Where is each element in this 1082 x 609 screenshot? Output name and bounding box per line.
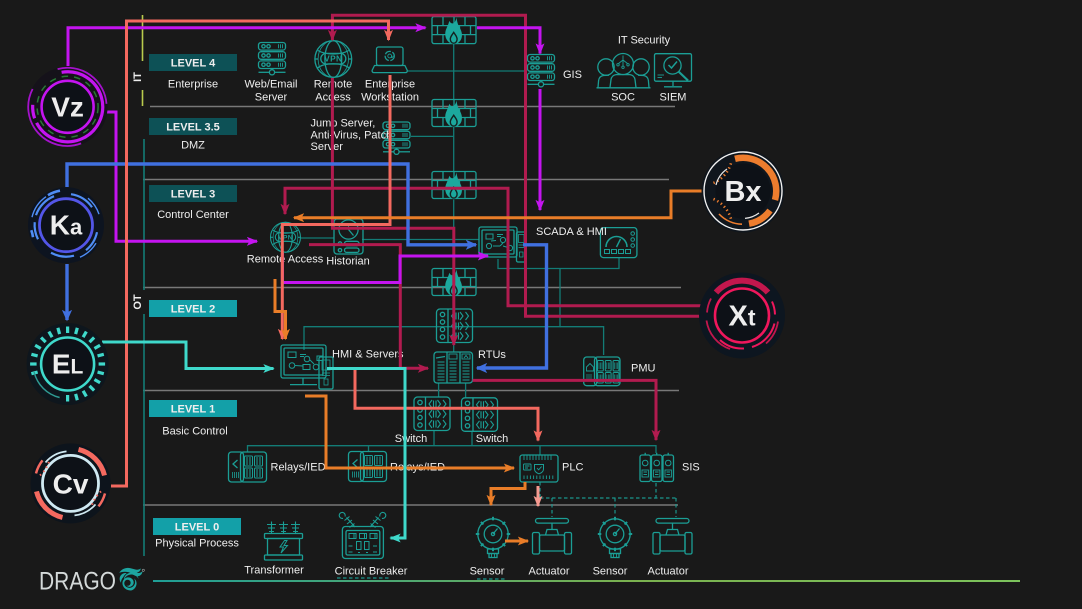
svg-text:Server: Server — [255, 92, 288, 104]
svg-text:LEVEL 3.5: LEVEL 3.5 — [166, 122, 220, 134]
svg-text:Jump Server,: Jump Server, — [311, 118, 376, 130]
svg-text:Transformer: Transformer — [244, 565, 304, 577]
svg-text:SIS: SIS — [682, 462, 700, 474]
svg-text:RTUs: RTUs — [478, 349, 506, 361]
svg-text:DMZ: DMZ — [181, 140, 205, 152]
svg-text:Ka: Ka — [50, 210, 83, 241]
svg-text:Enterprise: Enterprise — [168, 79, 218, 91]
svg-text:Vz: Vz — [51, 91, 84, 122]
svg-text:Switch: Switch — [476, 433, 508, 445]
svg-text:Anti-Virus, Patch: Anti-Virus, Patch — [311, 129, 393, 141]
svg-text:Cv: Cv — [53, 468, 89, 499]
svg-text:PLC: PLC — [562, 462, 583, 474]
svg-text:Historian: Historian — [326, 256, 369, 268]
svg-text:IT Security: IT Security — [618, 35, 671, 47]
svg-text:Control Center: Control Center — [157, 209, 229, 221]
svg-text:Switch: Switch — [395, 433, 427, 445]
svg-text:LEVEL 2: LEVEL 2 — [171, 304, 215, 316]
svg-text:Xt: Xt — [728, 301, 755, 333]
svg-text:Actuator: Actuator — [529, 566, 570, 578]
svg-text:Bx: Bx — [724, 176, 761, 208]
svg-text:GIS: GIS — [563, 69, 582, 81]
svg-text:PMU: PMU — [631, 363, 656, 375]
svg-text:LEVEL 4: LEVEL 4 — [171, 58, 216, 70]
svg-text:OT: OT — [132, 294, 144, 310]
svg-text:SIEM: SIEM — [660, 92, 687, 104]
svg-text:Web/Email: Web/Email — [245, 79, 298, 91]
svg-text:DRAGO: DRAGO — [39, 568, 116, 596]
svg-text:Sensor: Sensor — [470, 566, 505, 578]
svg-text:LEVEL 0: LEVEL 0 — [175, 522, 219, 534]
svg-text:LEVEL 1: LEVEL 1 — [171, 404, 215, 416]
svg-text:Circuit Breaker: Circuit Breaker — [335, 566, 408, 578]
svg-text:Actuator: Actuator — [648, 566, 689, 578]
svg-text:SOC: SOC — [611, 92, 635, 104]
svg-text:SCADA & HMI: SCADA & HMI — [536, 226, 607, 238]
svg-text:Physical Process: Physical Process — [155, 538, 239, 550]
svg-text:IT: IT — [132, 72, 144, 82]
svg-text:LEVEL 3: LEVEL 3 — [171, 189, 215, 201]
svg-text:Server: Server — [311, 141, 344, 153]
svg-text:Basic Control: Basic Control — [162, 426, 227, 438]
svg-text:Sensor: Sensor — [593, 566, 628, 578]
svg-text:Remote Access: Remote Access — [247, 254, 324, 266]
svg-text:Relays/IED: Relays/IED — [271, 462, 326, 474]
svg-text:HMI & Servers: HMI & Servers — [332, 349, 404, 361]
